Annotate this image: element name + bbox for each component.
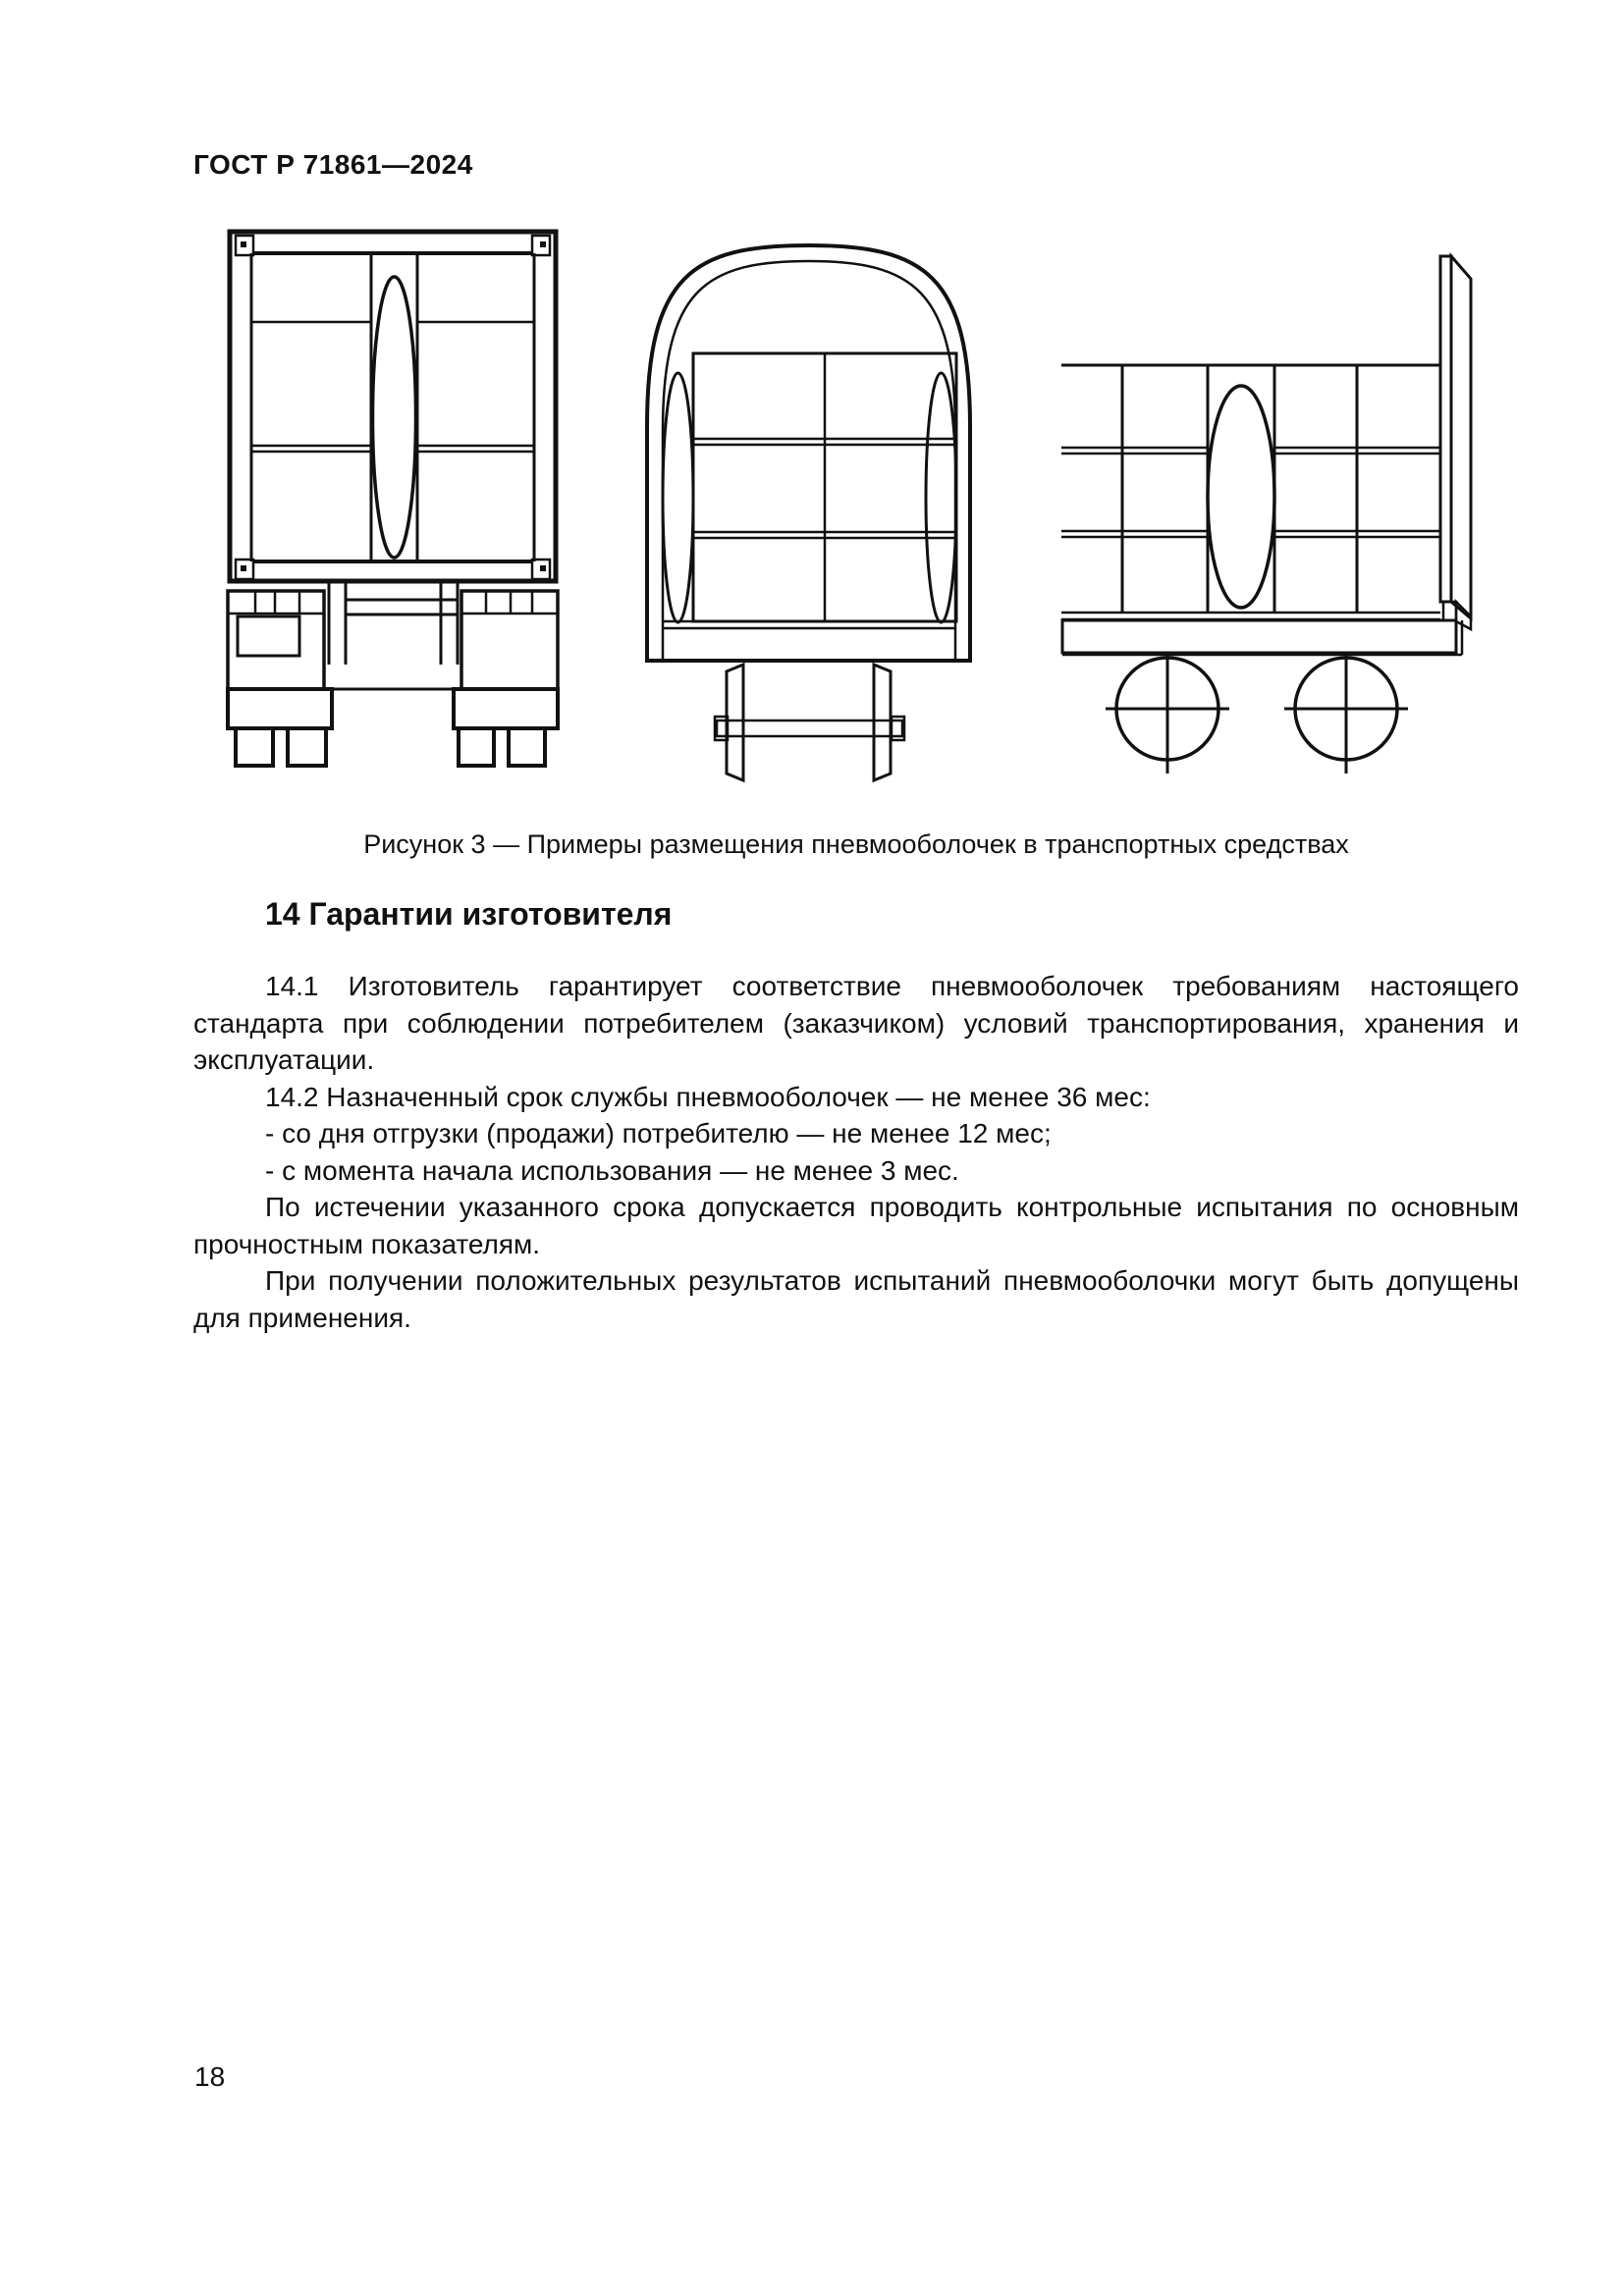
document-page: ГОСТ Р 71861—2024 xyxy=(0,0,1624,2296)
cargo-grid xyxy=(1061,365,1440,619)
rail-wheelset xyxy=(715,665,904,780)
truck-chassis xyxy=(228,581,558,766)
paragraph-14-1: 14.1 Изготовитель гарантирует соответств… xyxy=(193,968,1519,1079)
pneumatic-shell-left-ellipse xyxy=(663,373,693,622)
section-body: 14.1 Изготовитель гарантирует соответств… xyxy=(193,968,1519,1336)
paragraph-14-2: 14.2 Назначенный срок службы пневмооболо… xyxy=(193,1079,1519,1116)
document-header: ГОСТ Р 71861—2024 xyxy=(193,149,473,181)
page-number: 18 xyxy=(194,2061,225,2093)
pneumatic-shell-ellipse xyxy=(1208,386,1274,608)
wheels xyxy=(1106,655,1408,774)
paragraph-dash-shipping: - со дня отгрузки (продажи) потребителю … xyxy=(193,1115,1519,1152)
section-heading: 14 Гарантии изготовителя xyxy=(265,896,672,933)
cargo-grid xyxy=(693,353,956,621)
platform-car-side-view-drawing xyxy=(1058,251,1475,777)
container-frame xyxy=(230,232,556,581)
paragraph-control-tests: По истечении указанного срока допускаетс… xyxy=(193,1189,1519,1262)
end-wall-panel xyxy=(1440,256,1471,618)
paragraph-positive-results: При получении положительных результатов … xyxy=(193,1262,1519,1336)
paragraph-dash-usage: - с момента начала использования — не ме… xyxy=(193,1152,1519,1190)
figure-caption: Рисунок 3 — Примеры размещения пневмообо… xyxy=(193,829,1519,860)
pneumatic-shell-right-ellipse xyxy=(926,373,956,622)
cargo-grid xyxy=(251,253,534,561)
wagon-body xyxy=(647,245,970,661)
truck-rear-view-drawing xyxy=(224,224,562,770)
railcar-cross-section-drawing xyxy=(643,240,974,784)
pneumatic-shell-ellipse xyxy=(373,277,416,558)
